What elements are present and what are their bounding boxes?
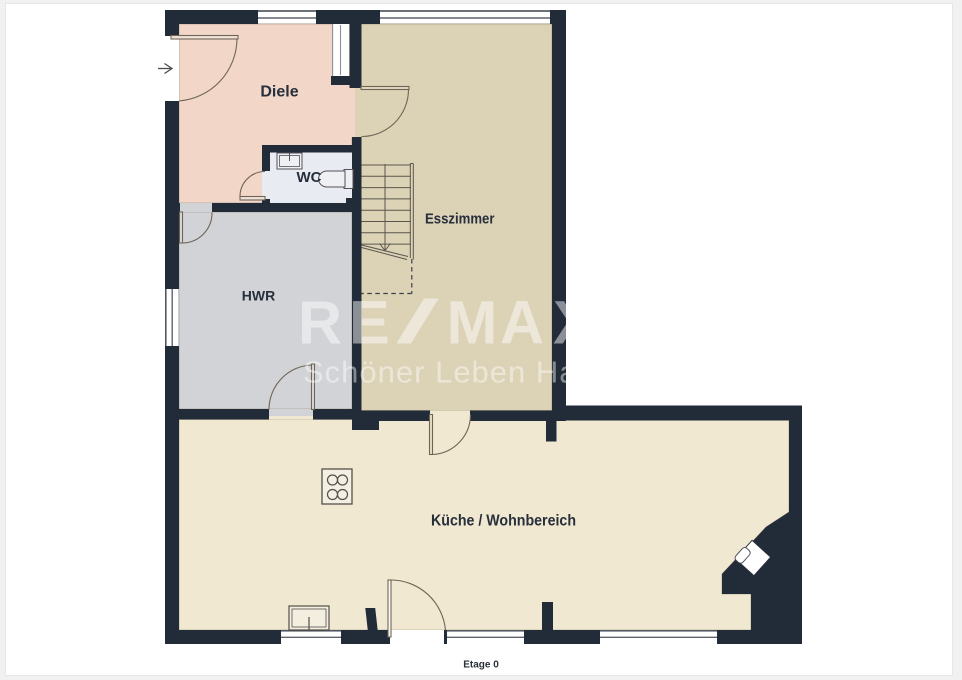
svg-text:WC: WC [297, 169, 322, 186]
svg-text:Küche / Wohnbereich: Küche / Wohnbereich [431, 513, 576, 530]
svg-text:Diele: Diele [260, 84, 298, 101]
svg-text:Schöner Leben Hamburg: Schöner Leben Hamburg [303, 355, 670, 390]
svg-text:Esszimmer: Esszimmer [425, 211, 495, 228]
svg-text:Etage 0: Etage 0 [463, 660, 499, 671]
svg-text:HWR: HWR [242, 288, 275, 304]
